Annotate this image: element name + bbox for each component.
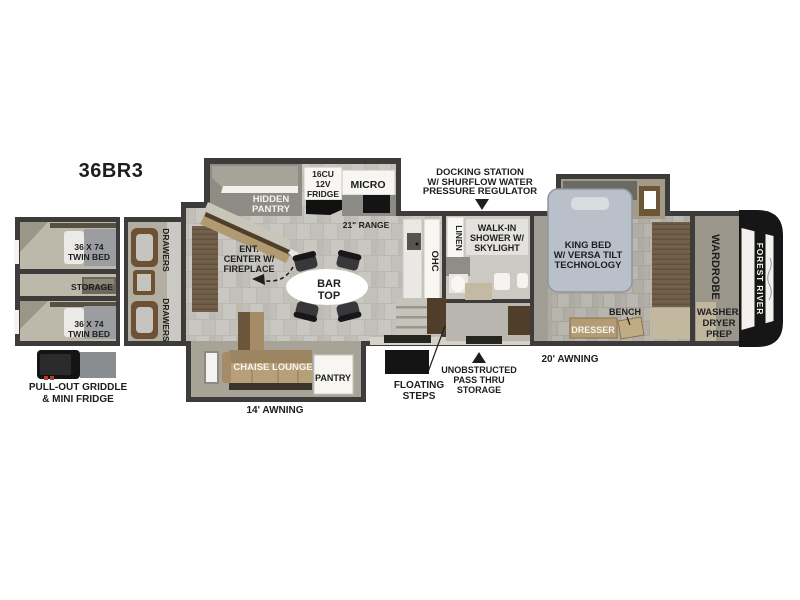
svg-text:BENCH: BENCH bbox=[609, 307, 641, 317]
svg-text:DRYER: DRYER bbox=[703, 318, 736, 329]
svg-text:STORAGE: STORAGE bbox=[71, 282, 113, 292]
svg-text:SKYLIGHT: SKYLIGHT bbox=[474, 243, 520, 253]
svg-text:16CU: 16CU bbox=[312, 169, 334, 179]
svg-text:CENTER W/: CENTER W/ bbox=[224, 254, 275, 264]
svg-text:STEPS: STEPS bbox=[403, 391, 436, 402]
svg-text:PANTRY: PANTRY bbox=[252, 204, 291, 215]
svg-text:TWIN BED: TWIN BED bbox=[68, 329, 110, 339]
svg-text:& MINI FRIDGE: & MINI FRIDGE bbox=[42, 394, 114, 405]
svg-text:FLOATING: FLOATING bbox=[394, 380, 445, 391]
svg-text:TOP: TOP bbox=[318, 290, 340, 302]
svg-text:DRESSER: DRESSER bbox=[571, 325, 615, 335]
svg-text:CHAISE LOUNGE: CHAISE LOUNGE bbox=[233, 362, 312, 373]
svg-text:BAR: BAR bbox=[317, 278, 341, 290]
svg-text:PASS THRU: PASS THRU bbox=[453, 375, 504, 385]
svg-text:DRAWERS: DRAWERS bbox=[161, 298, 171, 342]
svg-text:TECHNOLOGY: TECHNOLOGY bbox=[554, 260, 622, 271]
svg-text:20' AWNING: 20' AWNING bbox=[541, 354, 598, 365]
svg-text:WARDROBE: WARDROBE bbox=[709, 234, 721, 299]
svg-text:FOREST RIVER: FOREST RIVER bbox=[755, 243, 765, 315]
svg-text:36BR3: 36BR3 bbox=[79, 160, 144, 182]
svg-text:ENT.: ENT. bbox=[239, 244, 259, 254]
svg-text:FIREPLACE: FIREPLACE bbox=[223, 264, 274, 274]
svg-text:LINEN: LINEN bbox=[454, 225, 464, 251]
svg-text:12V: 12V bbox=[315, 179, 330, 189]
svg-text:DRAWERS: DRAWERS bbox=[161, 228, 171, 272]
svg-text:36 X 74: 36 X 74 bbox=[74, 319, 104, 329]
svg-text:UNOBSTRUCTED: UNOBSTRUCTED bbox=[441, 365, 517, 375]
svg-text:PANTRY: PANTRY bbox=[315, 373, 351, 383]
svg-text:14' AWNING: 14' AWNING bbox=[246, 405, 303, 416]
svg-text:SHOWER W/: SHOWER W/ bbox=[470, 233, 524, 243]
svg-text:OHC: OHC bbox=[429, 250, 440, 271]
svg-text:STORAGE: STORAGE bbox=[457, 385, 501, 395]
svg-text:21" RANGE: 21" RANGE bbox=[343, 220, 390, 230]
svg-text:WASHER/: WASHER/ bbox=[697, 307, 742, 318]
svg-text:TWIN BED: TWIN BED bbox=[68, 252, 110, 262]
svg-text:WALK-IN: WALK-IN bbox=[478, 223, 517, 233]
svg-text:36 X 74: 36 X 74 bbox=[74, 242, 104, 252]
svg-text:PRESSURE REGULATOR: PRESSURE REGULATOR bbox=[423, 186, 537, 197]
svg-text:FRIDGE: FRIDGE bbox=[307, 189, 339, 199]
svg-text:PULL-OUT GRIDDLE: PULL-OUT GRIDDLE bbox=[29, 382, 128, 393]
svg-text:PREP: PREP bbox=[706, 329, 733, 340]
svg-text:MICRO: MICRO bbox=[351, 179, 386, 191]
